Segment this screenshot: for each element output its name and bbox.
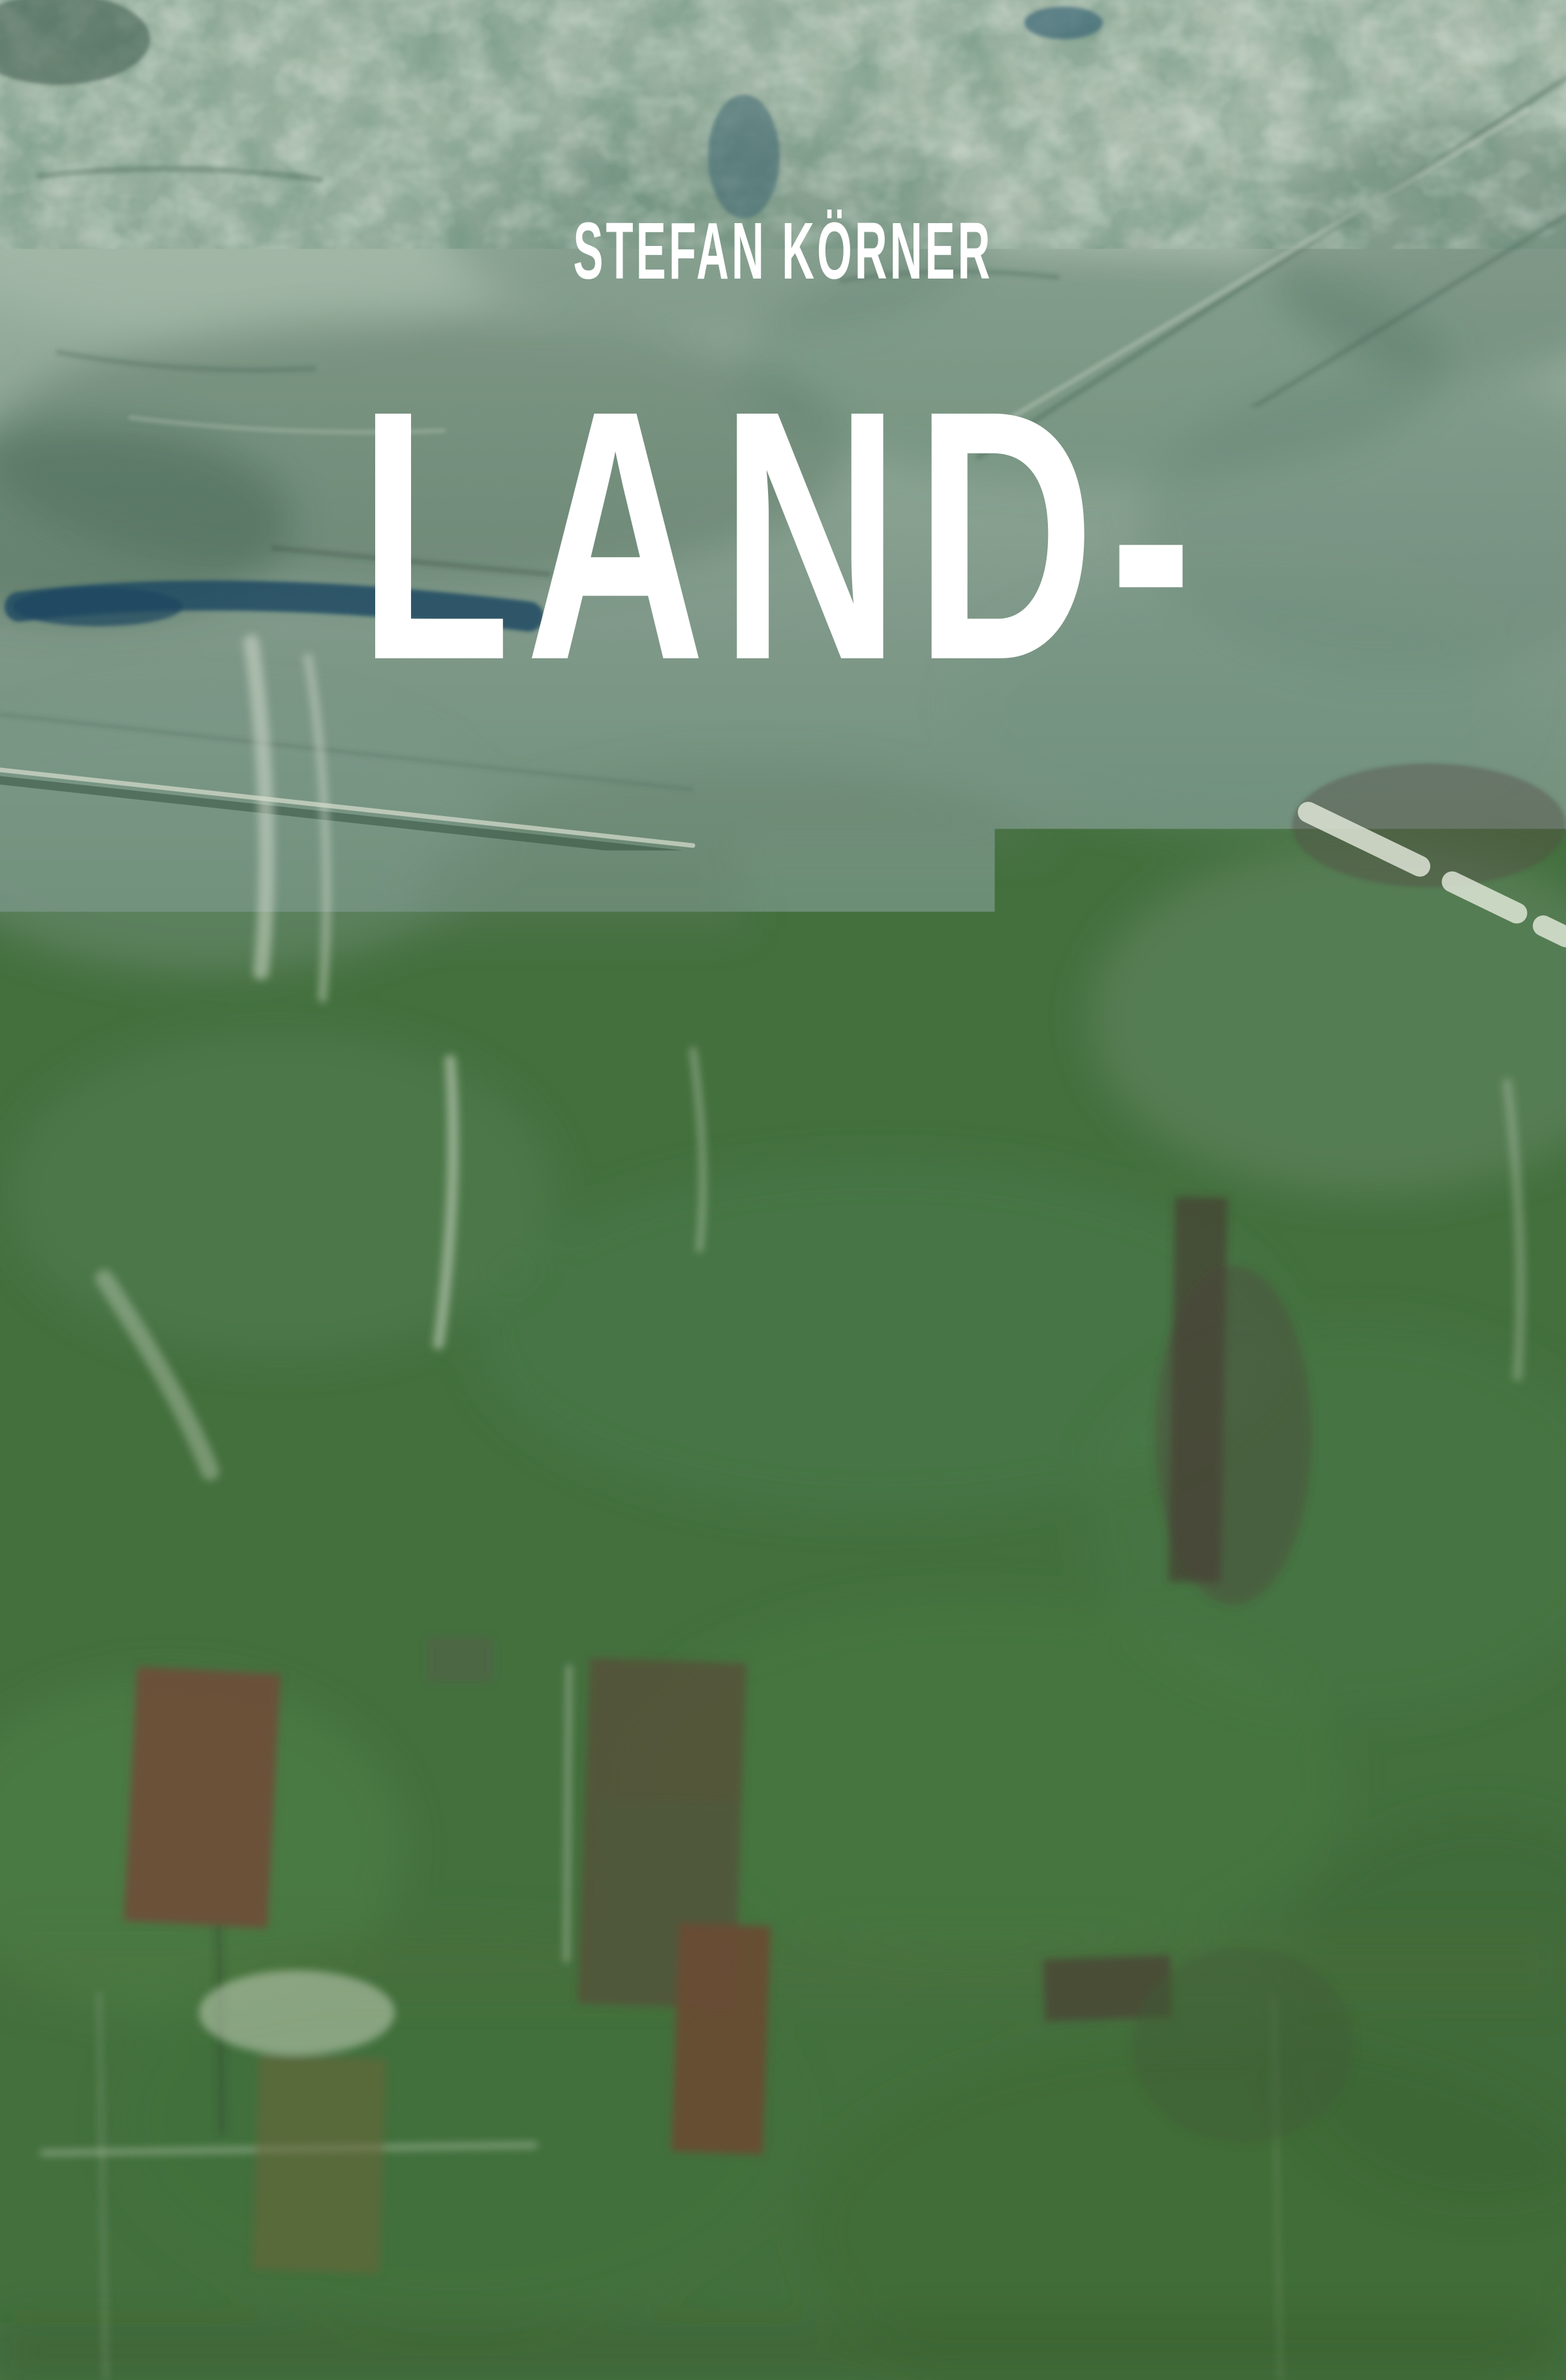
subtitle: PLANUNG, PFLEGE, SINNSTIFTUNG <box>327 1471 1240 1547</box>
author-name: STEFAN KÖRNER <box>573 211 992 292</box>
title-line-2: SCHAFT <box>249 640 1317 996</box>
series-name: Neue Ökologie <box>796 2202 1079 2250</box>
publisher-bracket-right-icon: ] <box>729 2161 762 2259</box>
book-cover: STEFAN KÖRNER LAND- SCHAFT ALS PROJEKT P… <box>0 0 1566 2380</box>
title-line-4: PROJEKT <box>223 1115 1343 1461</box>
publisher-name: transcript <box>479 2182 723 2255</box>
title-line-3: ALS <box>684 958 882 1114</box>
publisher-mark: [ transcript ] Neue Ökologie <box>439 2161 1127 2259</box>
publisher-bracket-left-icon: [ <box>439 2161 472 2259</box>
